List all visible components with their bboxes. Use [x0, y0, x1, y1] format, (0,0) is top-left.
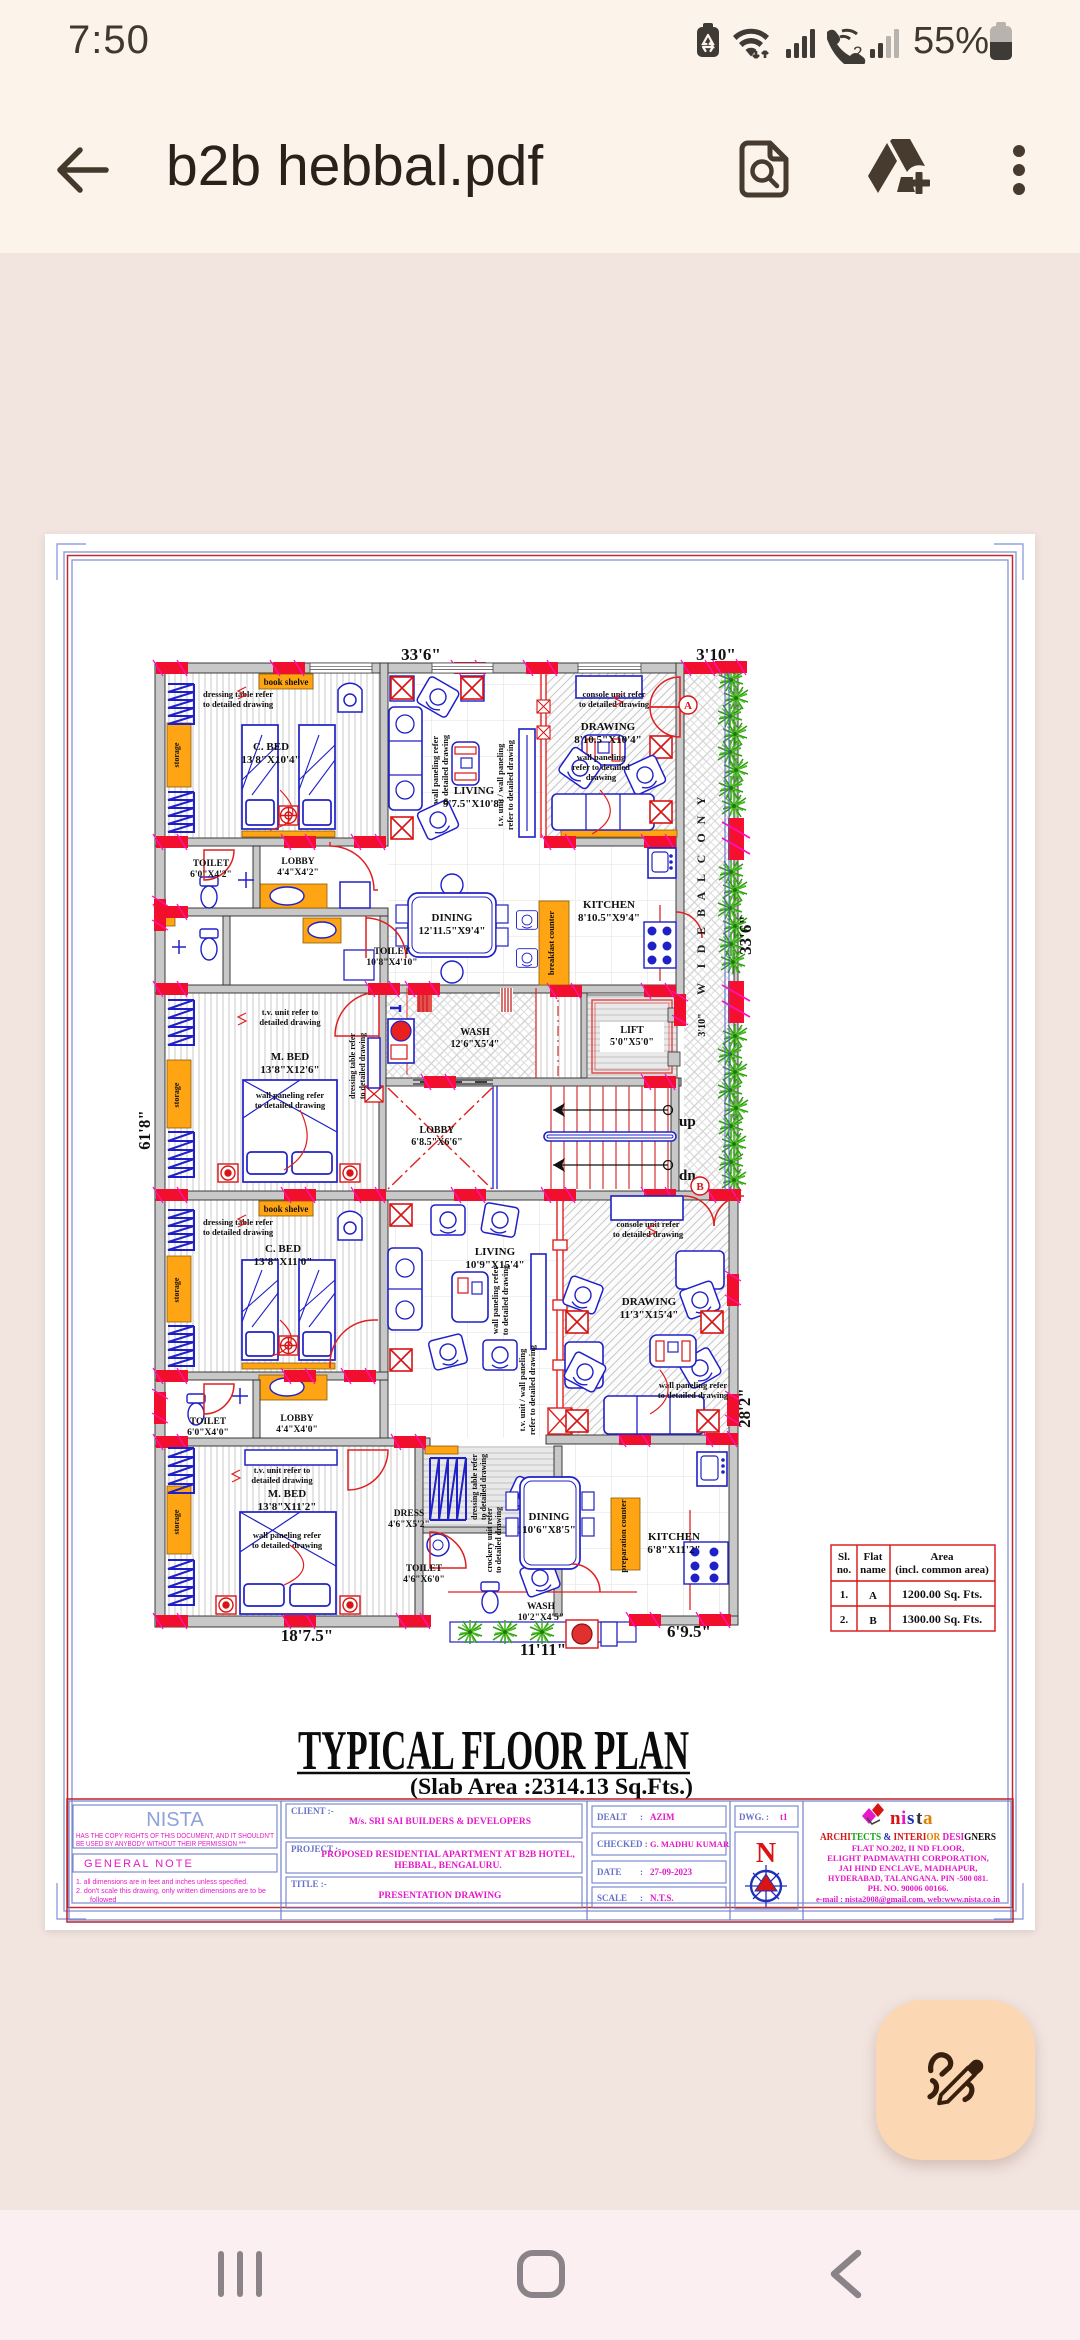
svg-text:M. BED: M. BED [271, 1051, 310, 1063]
svg-text:detailed drawing: detailed drawing [251, 1475, 313, 1485]
svg-text:to detailed drawing: to detailed drawing [613, 1229, 684, 1239]
svg-text:13'8"X10'4": 13'8"X10'4" [241, 754, 300, 766]
svg-text:A: A [869, 1590, 877, 1602]
svg-text:DATE: DATE [597, 1867, 621, 1877]
svg-text:storage: storage [172, 1277, 181, 1302]
svg-text:BE USED BY ANYBODY WITHOUT THE: BE USED BY ANYBODY WITHOUT THEIR PERMISS… [76, 1839, 246, 1848]
svg-text:i: i [901, 1808, 906, 1829]
svg-text:TITLE :-: TITLE :- [291, 1879, 327, 1889]
svg-text:up: up [679, 1114, 696, 1130]
svg-text:12'11.5"X9'4": 12'11.5"X9'4" [419, 925, 486, 937]
svg-text:8'10.5"X10'4": 8'10.5"X10'4" [574, 734, 642, 746]
svg-text:s: s [907, 1808, 914, 1829]
svg-text:13'8"X11'2": 13'8"X11'2" [258, 1501, 317, 1513]
svg-text:TOILET: TOILET [406, 1564, 443, 1574]
svg-text:28'2": 28'2" [735, 1388, 754, 1428]
svg-text:C. BED: C. BED [253, 741, 289, 753]
svg-text:M/s. SRI SAI BUILDERS & DEVELO: M/s. SRI SAI BUILDERS & DEVELOPERS [349, 1817, 531, 1827]
svg-text:8'10.5"X9'4": 8'10.5"X9'4" [578, 912, 640, 924]
svg-text:13'8"X11'0": 13'8"X11'0" [254, 1256, 313, 1268]
svg-text:wall paneling refer: wall paneling refer [490, 1266, 500, 1335]
svg-text:DRAWING: DRAWING [581, 721, 636, 733]
svg-text:LOBBY: LOBBY [280, 1414, 313, 1424]
svg-text:4'6"X6'0": 4'6"X6'0" [403, 1575, 445, 1585]
svg-text::: : [640, 1893, 643, 1903]
svg-text:ELIGHT PADMAVATHI CORPORATION,: ELIGHT PADMAVATHI CORPORATION, [827, 1853, 989, 1863]
svg-text:book shelve: book shelve [264, 677, 309, 687]
svg-text:t.v. unit refer to: t.v. unit refer to [262, 1007, 319, 1017]
svg-text:PROPOSED RESIDENTIAL APARTMENT: PROPOSED RESIDENTIAL APARTMENT AT B2B HO… [321, 1850, 575, 1860]
svg-text:e-mail : nista2008@gmail.com,: e-mail : nista2008@gmail.com, web:www.ni… [816, 1894, 1000, 1904]
svg-text:NISTA: NISTA [146, 1809, 204, 1831]
svg-text:(incl. common area): (incl. common area) [895, 1564, 989, 1576]
svg-text:to detailed drawing: to detailed drawing [579, 699, 650, 709]
svg-text:storage: storage [172, 1509, 181, 1534]
svg-text:storage: storage [172, 1082, 181, 1107]
svg-text:(Slab Area :2314.13 Sq.Fts.): (Slab Area :2314.13 Sq.Fts.) [410, 1774, 693, 1800]
svg-text:to detailed drawing: to detailed drawing [494, 1507, 503, 1573]
svg-text:4'6"X5'2": 4'6"X5'2" [388, 1520, 430, 1530]
svg-text:to detailed drawing: to detailed drawing [358, 1033, 367, 1099]
svg-text:E: E [694, 927, 708, 935]
svg-text:storage: storage [172, 742, 181, 767]
svg-text:33'6": 33'6" [401, 645, 441, 664]
svg-text:N: N [694, 815, 708, 824]
svg-text:13'8"X12'6": 13'8"X12'6" [260, 1064, 319, 1076]
svg-text:6'0"X4'0": 6'0"X4'0" [187, 1428, 229, 1438]
svg-text:27-09-2023: 27-09-2023 [650, 1867, 692, 1877]
svg-text:12'6"X5'4": 12'6"X5'4" [451, 1039, 500, 1050]
svg-text:LIFT: LIFT [620, 1025, 644, 1036]
svg-text:detailed drawing: detailed drawing [259, 1017, 321, 1027]
svg-text:B: B [869, 1615, 877, 1627]
svg-text:LOBBY: LOBBY [281, 857, 314, 867]
svg-text:4'4"X4'2": 4'4"X4'2" [277, 868, 319, 878]
svg-text:LIVING: LIVING [454, 785, 495, 797]
svg-text:AZIM: AZIM [650, 1812, 675, 1822]
svg-text::: : [640, 1812, 643, 1822]
svg-text:N.T.S.: N.T.S. [650, 1893, 674, 1903]
svg-text:10'6"X8'5": 10'6"X8'5" [522, 1524, 576, 1536]
svg-text:t: t [916, 1808, 923, 1829]
svg-text:breakfast counter: breakfast counter [546, 911, 556, 976]
svg-text::: : [640, 1867, 643, 1877]
svg-text:11'11": 11'11" [520, 1640, 566, 1659]
svg-text:GENERAL NOTE: GENERAL NOTE [84, 1858, 194, 1870]
svg-text:to detailed drawing: to detailed drawing [255, 1100, 326, 1110]
svg-text:D: D [694, 944, 708, 953]
svg-text:t.v. unit refer to: t.v. unit refer to [254, 1465, 311, 1475]
svg-text:wall paneling refer: wall paneling refer [430, 736, 440, 805]
svg-text:book shelve: book shelve [264, 1204, 309, 1214]
svg-text:t.v. unit / wall paneling: t.v. unit / wall paneling [495, 743, 505, 826]
svg-text:M. BED: M. BED [268, 1488, 307, 1500]
svg-text:DRAWING: DRAWING [622, 1296, 677, 1308]
svg-text:LIVING: LIVING [475, 1246, 516, 1258]
svg-text:dressing table refer: dressing table refer [348, 1033, 357, 1099]
svg-text:WASH: WASH [460, 1027, 490, 1038]
svg-text:1200.00 Sq. Fts.: 1200.00 Sq. Fts. [902, 1587, 982, 1601]
svg-text:no.: no. [837, 1564, 852, 1576]
svg-text:to detailed drawing: to detailed drawing [203, 1227, 274, 1237]
svg-text:N: N [756, 1838, 776, 1869]
svg-text:1.: 1. [840, 1589, 849, 1601]
svg-text:5'0"X5'0": 5'0"X5'0" [610, 1037, 654, 1048]
svg-text:C. BED: C. BED [265, 1243, 301, 1255]
svg-text:W: W [694, 983, 708, 995]
svg-text:name: name [860, 1564, 886, 1576]
svg-text:Area: Area [930, 1551, 954, 1563]
svg-text:61'8": 61'8" [135, 1110, 154, 1150]
svg-text:33'6": 33'6" [736, 915, 755, 955]
svg-text:DRESS: DRESS [394, 1509, 425, 1519]
svg-text:10'2"X4'5": 10'2"X4'5" [518, 1613, 564, 1623]
svg-text:Flat: Flat [864, 1551, 883, 1563]
svg-text:DEALT: DEALT [597, 1812, 627, 1822]
svg-text:DINING: DINING [432, 912, 473, 924]
svg-text:n: n [890, 1808, 901, 1829]
svg-text:WASH: WASH [527, 1602, 556, 1612]
svg-text:C: C [694, 855, 708, 864]
svg-text:followed: followed [90, 1895, 116, 1904]
svg-text:B: B [696, 1181, 704, 1193]
svg-text:to detailed drawing: to detailed drawing [500, 1264, 510, 1335]
svg-text:1300.00 Sq. Fts.: 1300.00 Sq. Fts. [902, 1612, 982, 1626]
svg-text:TOILET: TOILET [193, 859, 230, 869]
svg-text:CLIENT :-: CLIENT :- [291, 1806, 334, 1816]
svg-text:TOILET: TOILET [190, 1417, 227, 1427]
svg-text:HYDERABAD, TALANGANA. PIN -500: HYDERABAD, TALANGANA. PIN -500 081. [828, 1873, 988, 1883]
svg-text:to detailed drawing: to detailed drawing [203, 699, 274, 709]
svg-text:HEBBAL, BENGALURU.: HEBBAL, BENGALURU. [394, 1861, 501, 1871]
svg-text:t.v. unit / wall paneling: t.v. unit / wall paneling [517, 1348, 527, 1431]
svg-text:refer to detailed drawing: refer to detailed drawing [505, 739, 515, 830]
svg-text:6'9.5": 6'9.5" [667, 1622, 711, 1641]
svg-text:A: A [694, 891, 708, 900]
svg-text:TOILET: TOILET [374, 947, 411, 957]
svg-text:refer to detailed: refer to detailed [572, 762, 630, 772]
svg-text:6'8"X11'2": 6'8"X11'2" [647, 1544, 700, 1556]
svg-text:3'10": 3'10" [697, 1013, 708, 1036]
svg-text:wall paneling: wall paneling [577, 752, 626, 762]
svg-text:Y: Y [694, 796, 708, 805]
svg-text:6'0"X4'2": 6'0"X4'2" [190, 870, 232, 880]
svg-text:LOBBY: LOBBY [419, 1125, 455, 1136]
svg-text:t1: t1 [780, 1812, 788, 1822]
svg-text:drawing: drawing [586, 772, 617, 782]
svg-text:crockery unit refer: crockery unit refer [485, 1507, 494, 1572]
svg-text:1. all dimensions are in: 1. all dimensions are in feet and inches… [76, 1877, 248, 1886]
svg-text:wall paneling refer: wall paneling refer [659, 1380, 728, 1390]
svg-text:O: O [694, 833, 708, 842]
svg-text:a: a [923, 1808, 933, 1829]
svg-text:to detailed drawing: to detailed drawing [252, 1540, 323, 1550]
svg-text:A: A [684, 700, 692, 712]
svg-text:PRESENTATION DRAWING: PRESENTATION DRAWING [379, 1891, 503, 1901]
svg-text:6'8.5"X6'6": 6'8.5"X6'6" [411, 1137, 462, 1148]
svg-text:SCALE: SCALE [597, 1893, 627, 1903]
svg-text:DINING: DINING [529, 1511, 570, 1523]
svg-text:refer to detailed drawing: refer to detailed drawing [527, 1344, 537, 1435]
svg-text:10'8"X4'10": 10'8"X4'10" [366, 958, 417, 968]
svg-text:ARCHITECTS & INTERIOR DESIGNER: ARCHITECTS & INTERIOR DESIGNERS [820, 1832, 996, 1843]
svg-text:4'4"X4'0": 4'4"X4'0" [276, 1425, 318, 1435]
svg-text:10'9"X15'4": 10'9"X15'4" [465, 1259, 524, 1271]
svg-text:JAI HIND ENCLAVE, MADHAPUR,: JAI HIND ENCLAVE, MADHAPUR, [838, 1863, 977, 1873]
svg-text:CHECKED :: CHECKED : [597, 1839, 648, 1849]
svg-text:11'3"X15'4": 11'3"X15'4" [620, 1309, 679, 1321]
svg-text:B: B [694, 909, 708, 917]
svg-text:2.: 2. [840, 1614, 849, 1626]
svg-text:Sl.: Sl. [838, 1551, 850, 1563]
svg-text:L: L [694, 874, 708, 882]
svg-text:FLAT NO.202, II ND FLOOR,: FLAT NO.202, II ND FLOOR, [852, 1843, 965, 1853]
svg-text:18'7.5": 18'7.5" [281, 1626, 333, 1645]
svg-text:wall paneling refer: wall paneling refer [256, 1090, 325, 1100]
svg-text:DWG. :: DWG. : [739, 1812, 769, 1822]
svg-text:PH. NO. 90006 00166.: PH. NO. 90006 00166. [868, 1883, 949, 1893]
svg-text:KITCHEN: KITCHEN [583, 899, 635, 911]
svg-text:I: I [694, 963, 708, 968]
svg-text:KITCHEN: KITCHEN [648, 1531, 700, 1543]
svg-text:G. MADHU KUMAR: G. MADHU KUMAR [650, 1839, 730, 1849]
svg-text:wall paneling refer: wall paneling refer [253, 1530, 322, 1540]
svg-text:preparation counter: preparation counter [618, 1499, 628, 1572]
svg-text:dressing table refer: dressing table refer [470, 1454, 479, 1520]
svg-text:2. don't scale this drawi: 2. don't scale this drawing, only writte… [76, 1886, 266, 1895]
svg-text:3'10": 3'10" [696, 645, 736, 664]
svg-text:to detailed drawing: to detailed drawing [440, 734, 450, 805]
